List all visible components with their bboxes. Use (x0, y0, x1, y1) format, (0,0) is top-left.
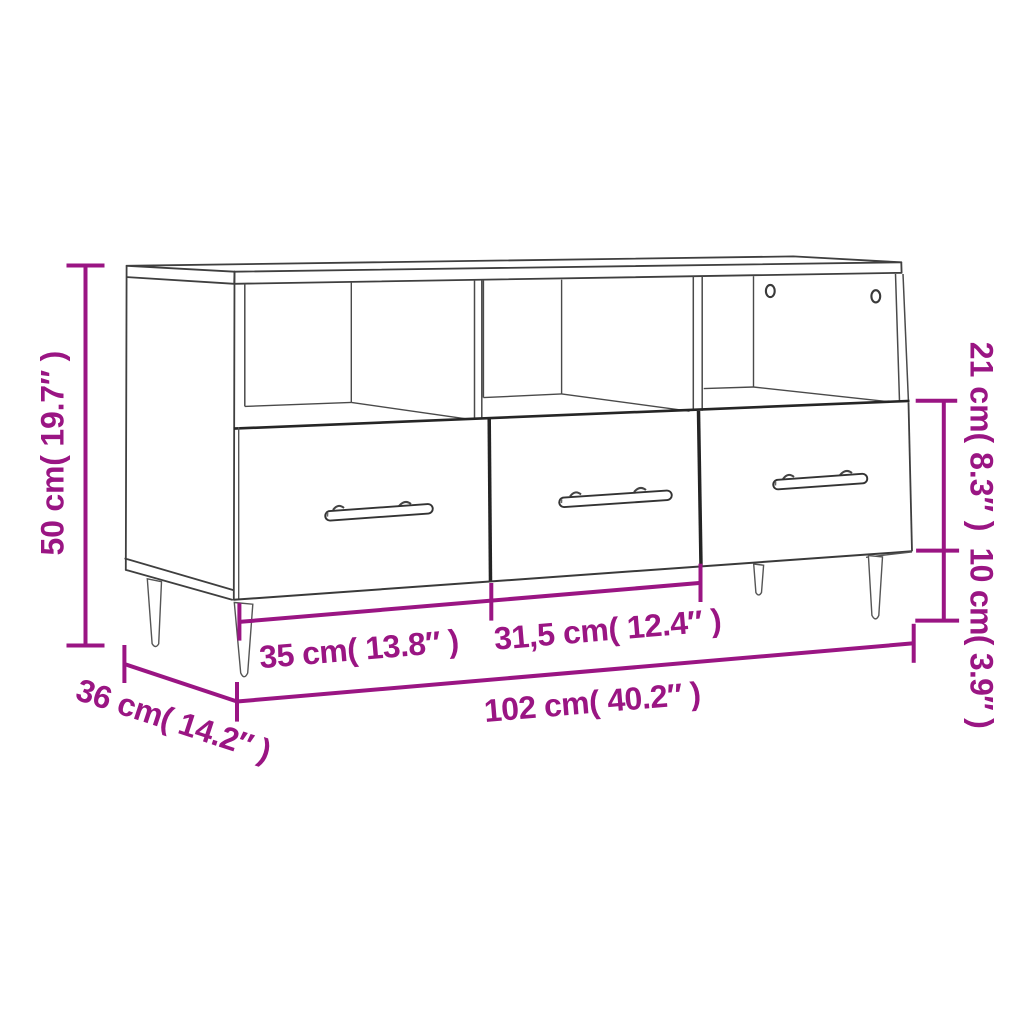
svg-text:10 cm( 3.9″ ): 10 cm( 3.9″ ) (963, 548, 999, 729)
svg-text:50 cm( 19.7″ ): 50 cm( 19.7″ ) (35, 351, 71, 556)
svg-text:21 cm( 8.3″ ): 21 cm( 8.3″ ) (963, 342, 999, 532)
